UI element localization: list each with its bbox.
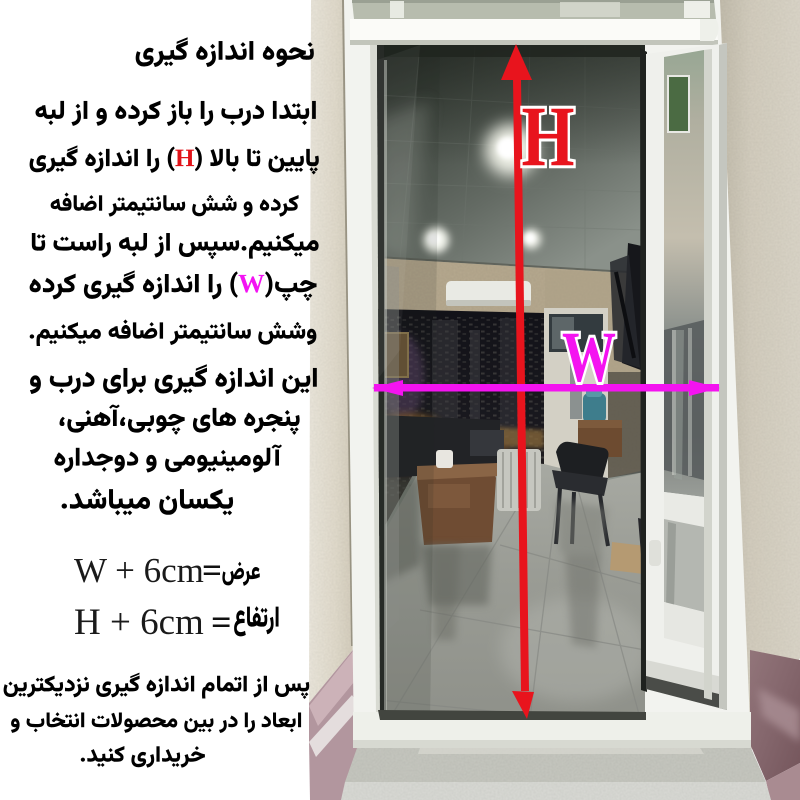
svg-text:W: W [562,317,616,397]
svg-text:H: H [522,88,575,184]
svg-text:H + 6cm: H + 6cm [74,602,204,643]
svg-text:=: = [211,602,232,642]
svg-text:=: = [202,551,222,590]
svg-text:W + 6cm: W + 6cm [74,551,204,590]
